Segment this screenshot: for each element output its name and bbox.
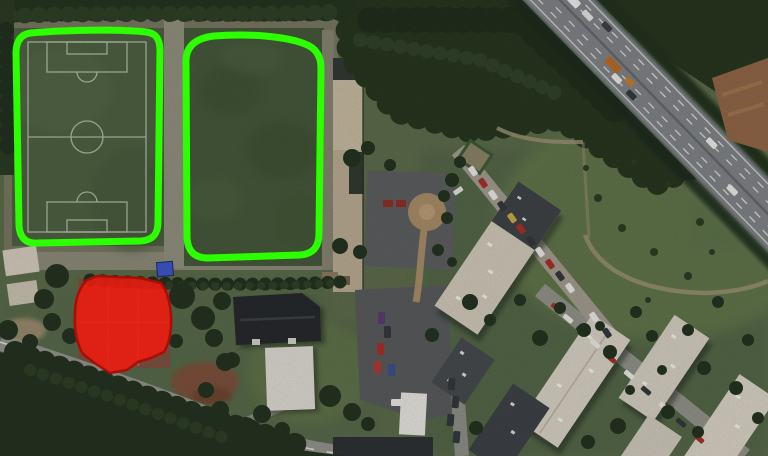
satellite-map[interactable] — [0, 0, 768, 456]
grain-overlay — [0, 0, 768, 456]
